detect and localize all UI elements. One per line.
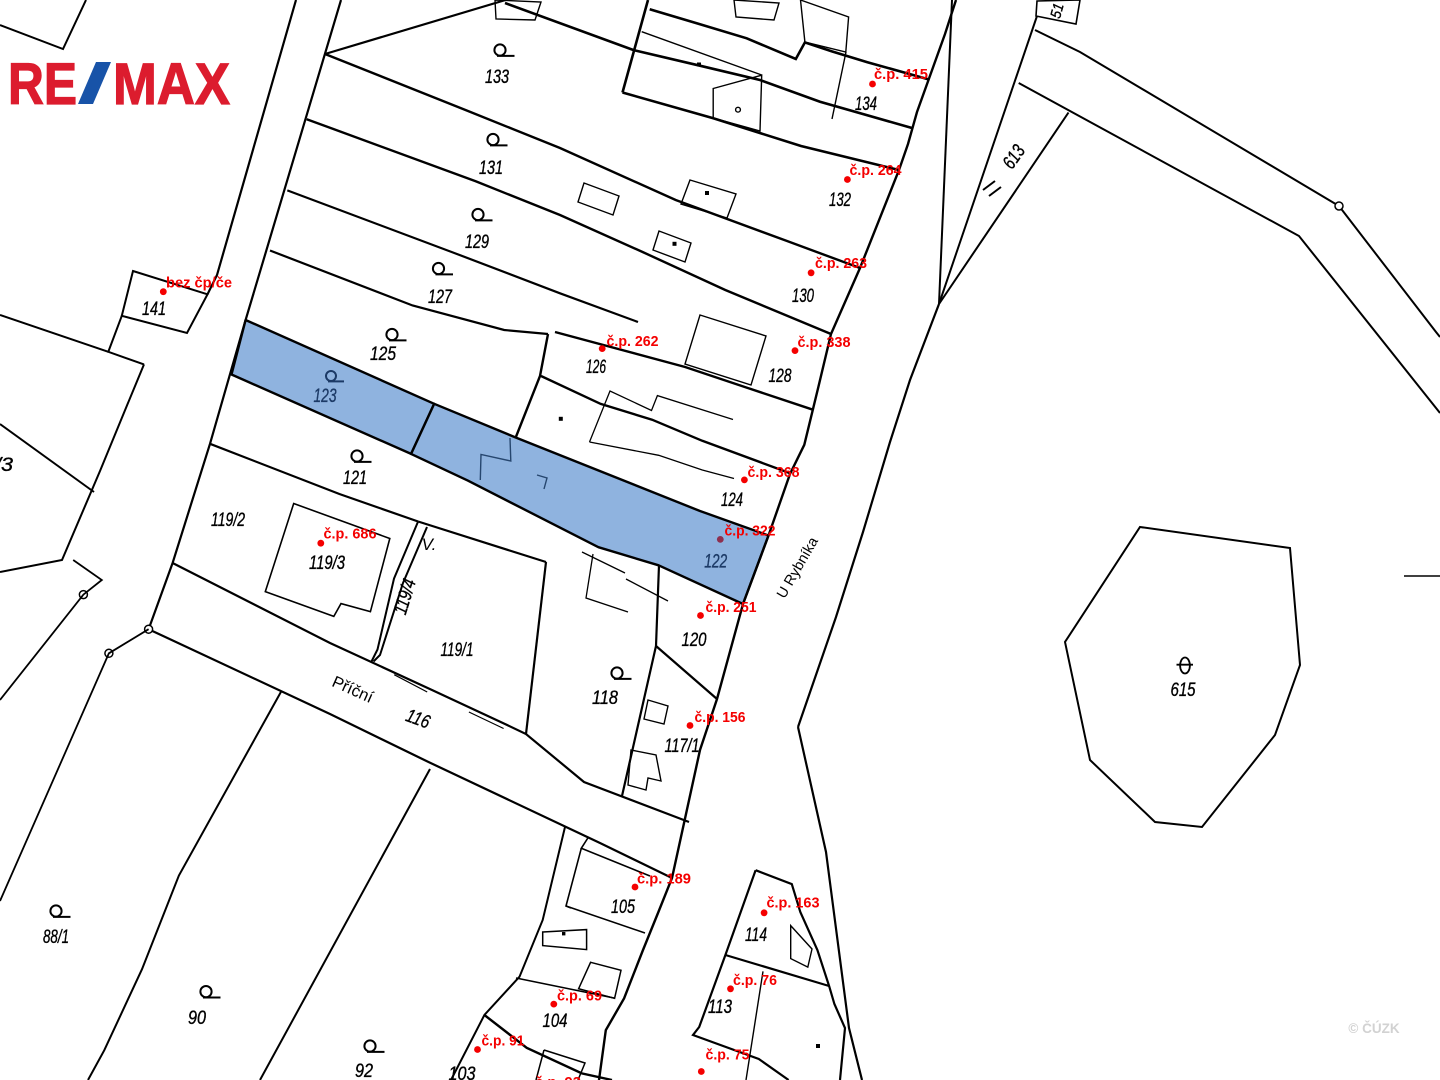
svg-text:č.p. 415: č.p. 415 (874, 66, 928, 83)
svg-text:113: 113 (708, 997, 732, 1018)
svg-text:90: 90 (188, 1008, 206, 1029)
svg-text:121: 121 (343, 468, 367, 489)
svg-text:141: 141 (142, 299, 166, 320)
svg-text:MAX: MAX (113, 52, 230, 117)
svg-text:č.p. 338: č.p. 338 (798, 334, 851, 351)
svg-text:103: 103 (449, 1064, 476, 1080)
svg-text:č.p. 686: č.p. 686 (324, 526, 377, 543)
svg-text:130: 130 (792, 286, 814, 307)
svg-text:125: 125 (370, 344, 396, 365)
svg-text:128: 128 (769, 366, 792, 387)
svg-text:119/2: 119/2 (211, 510, 245, 531)
svg-text:123: 123 (314, 386, 337, 407)
svg-text:bez čp/če: bez čp/če (166, 275, 232, 292)
svg-text:RE: RE (8, 52, 77, 117)
svg-text:117/1: 117/1 (665, 736, 700, 757)
svg-text:© ČÚZK: © ČÚZK (1348, 1021, 1399, 1036)
svg-text:č.p. 263: č.p. 263 (815, 255, 867, 272)
svg-text:114: 114 (745, 925, 767, 946)
svg-text:V.: V. (422, 535, 437, 554)
svg-text:č.p. 156: č.p. 156 (695, 709, 746, 726)
svg-text:92: 92 (355, 1061, 373, 1080)
svg-text:124: 124 (721, 490, 743, 511)
svg-text:č.p. 251: č.p. 251 (706, 599, 757, 616)
svg-text:č.p. 368: č.p. 368 (748, 464, 800, 481)
svg-text:č.p. 262: č.p. 262 (607, 333, 659, 350)
svg-text:č.p. 189: č.p. 189 (637, 871, 691, 888)
svg-text:615: 615 (1171, 680, 1196, 701)
svg-text:č.p. 69: č.p. 69 (557, 988, 602, 1005)
svg-text:118: 118 (592, 688, 618, 709)
svg-text:/3: /3 (0, 455, 13, 476)
svg-text:č.p. 75: č.p. 75 (706, 1047, 750, 1064)
svg-text:134: 134 (855, 94, 877, 115)
svg-text:132: 132 (829, 190, 851, 211)
svg-text:119/3: 119/3 (309, 553, 345, 574)
svg-text:č.p. 163: č.p. 163 (767, 895, 820, 912)
svg-text:105: 105 (611, 897, 635, 918)
svg-text:č.p. 264: č.p. 264 (850, 162, 903, 179)
svg-text:č.p. 76: č.p. 76 (733, 972, 777, 989)
svg-text:127: 127 (428, 287, 453, 308)
svg-text:122: 122 (704, 552, 727, 573)
svg-text:88/1: 88/1 (43, 927, 69, 948)
svg-text:104: 104 (543, 1011, 568, 1032)
svg-text:126: 126 (586, 357, 606, 378)
svg-text:129: 129 (465, 232, 489, 253)
svg-text:č.p. 322: č.p. 322 (725, 523, 776, 540)
svg-text:133: 133 (485, 67, 509, 88)
svg-text:č.p. 91: č.p. 91 (482, 1033, 525, 1050)
svg-text:č.p. 93: č.p. 93 (535, 1074, 581, 1080)
svg-text:131: 131 (479, 158, 503, 179)
svg-text:119/1: 119/1 (441, 640, 474, 661)
svg-text:120: 120 (682, 630, 707, 651)
